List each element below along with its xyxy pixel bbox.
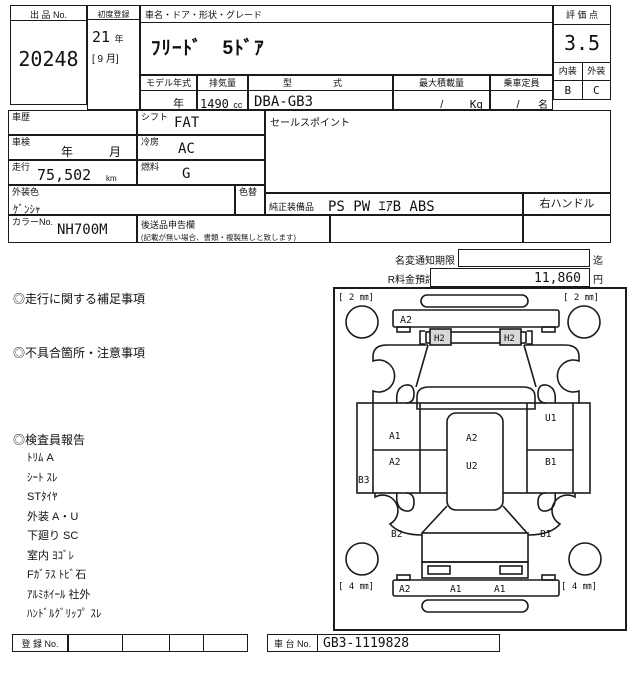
inspector-item: 下廻り SC <box>27 527 227 543</box>
inspection-month-unit: 月 <box>109 143 121 160</box>
interior-grade: B <box>554 81 583 100</box>
model-year-label: モデル年式 <box>141 76 196 91</box>
inspection-year-unit: 年 <box>61 143 73 160</box>
rear-right-wheel <box>569 543 601 575</box>
registration-cell-1 <box>68 634 123 652</box>
section-defect-notes: ◎不具合箇所・注意事項 <box>13 344 145 361</box>
tread-front-right: [ 2 ㎜] <box>563 293 599 303</box>
first-registration-month: [ 9 月] <box>92 50 137 65</box>
history-label: 車歴 <box>12 113 30 122</box>
rear-hatch <box>422 533 528 562</box>
rear-left-wheel <box>346 543 378 575</box>
rocker-left-code: B3 <box>358 475 369 486</box>
color-change-cell: 色替 <box>235 185 265 215</box>
color-number-cell: カラーNo. NH700M <box>8 215 137 243</box>
later-items-cell: 後送品申告欄 (記載が無い場合、書類・複製無しと致します) <box>137 215 330 243</box>
auction-sheet: 出 品 No. 20248 初度登録 21 年 [ 9 月] 車名・ドア・形状・… <box>0 0 640 680</box>
ac-cell: 冷房 AC <box>137 135 265 160</box>
model-code-cell: 型 式 DBA-GB3 <box>248 75 393 110</box>
door-left-bottom-code: A2 <box>389 457 400 468</box>
inspector-item: STﾀｲﾔ <box>27 488 227 504</box>
shift-cell: シフト FAT <box>137 110 265 135</box>
capacity-label: 乗車定員 <box>491 76 552 91</box>
displacement-cell: 排気量 1490 cc <box>197 75 248 110</box>
tread-front-left: [ 2 ㎜] <box>338 293 374 303</box>
name-change-field <box>458 249 590 267</box>
interior-label: 内装 <box>554 63 583 80</box>
model-code-label: 型 式 <box>249 76 392 91</box>
exterior-grade: C <box>583 81 611 100</box>
grade-label: 評 価 点 <box>554 6 610 25</box>
rear-bumper <box>393 580 559 596</box>
rear-bumper-code-3: A1 <box>494 584 506 595</box>
empty-cell-left <box>330 215 523 243</box>
handle-cell: 右ハンドル <box>523 193 611 215</box>
roof-code: A2 <box>466 433 477 444</box>
exterior-label: 外装 <box>583 63 611 80</box>
shift-label: シフト <box>141 113 168 122</box>
mileage-unit: km <box>106 174 117 183</box>
windshield <box>417 387 535 409</box>
door-left-top-code: A1 <box>389 431 401 442</box>
name-change-label: 名変通知期限 <box>330 252 455 267</box>
fuel-value: G <box>182 166 190 182</box>
car-name-value: ﾌﾘｰﾄﾞ 5ﾄﾞｱ <box>141 23 552 60</box>
history-cell: 車歴 <box>8 110 137 135</box>
first-registration-label: 初度登録 <box>88 6 139 20</box>
first-registration-box: 初度登録 21 年 [ 9 月] <box>87 5 140 110</box>
sales-point-label: セールスポイント <box>270 114 350 129</box>
inspector-item: Fｶﾞﾗｽ ﾄﾋﾞ石 <box>27 566 227 582</box>
mileage-label: 走行 <box>12 163 30 172</box>
taillight-left <box>428 566 450 574</box>
taillight-right <box>500 566 522 574</box>
inspector-item: 室内 ﾖｺﾞﾚ <box>27 547 227 563</box>
registration-number-label: 登 録 No. <box>12 634 68 652</box>
headlight-right-code: H2 <box>504 334 515 344</box>
displacement-value: 1490 <box>200 97 229 111</box>
front-bumper-code: A2 <box>400 315 412 326</box>
taillight-panel <box>422 562 528 578</box>
color-number-label: カラーNo. <box>12 218 53 227</box>
front-right-wheel <box>568 306 600 338</box>
displacement-label: 排気量 <box>198 76 247 91</box>
first-registration-year-unit: 年 <box>115 34 124 44</box>
capacity-cell: 乗車定員 / 名 <box>490 75 553 110</box>
floor-code: U2 <box>466 461 477 472</box>
mileage-value: 75,502 <box>37 166 91 184</box>
rear-right-quarter <box>528 493 575 535</box>
later-items-note: (記載が無い場合、書類・複製無しと致します) <box>138 231 329 243</box>
registration-cell-2 <box>122 634 170 652</box>
mirror-right <box>538 385 555 403</box>
model-code-value: DBA-GB3 <box>249 91 392 110</box>
tread-rear-right: [ 4 ㎜] <box>561 582 597 592</box>
fuel-label: 燃料 <box>141 163 159 172</box>
equipment-label: 純正装備品 <box>269 200 314 213</box>
max-load-cell: 最大積載量 / Kg <box>393 75 490 110</box>
lot-number-box: 出 品 No. 20248 <box>10 5 87 105</box>
model-year-value: 年 <box>141 91 196 111</box>
vehicle-damage-diagram: [ 2 ㎜] [ 2 ㎜] [ 4 ㎜] [ 4 ㎜] A2 H2 H2 A1 … <box>333 287 627 631</box>
car-name-header: 車名・ドア・形状・グレード <box>141 6 552 23</box>
headlight-left-code: H2 <box>434 334 445 344</box>
equipment-cell: 純正装備品 PS PW ｴｱB ABS <box>265 193 523 215</box>
inspection-label: 車検 <box>12 138 30 147</box>
registration-cell-3 <box>169 634 204 652</box>
chassis-number-label: 車 台 No. <box>267 634 318 652</box>
ac-value: AC <box>178 141 195 157</box>
inspector-item: 外装 A・U <box>27 508 227 524</box>
first-registration-year: 21 <box>92 28 110 46</box>
mirror-left <box>397 385 414 403</box>
exterior-color-label: 外装色 <box>12 188 39 197</box>
side-right-bottom-code: B1 <box>545 457 557 468</box>
exterior-color-cell: 外装色 ｹﾞﾝｼｬ <box>8 185 235 215</box>
inspection-cell: 車検 年 月 <box>8 135 137 160</box>
front-bumper <box>393 310 559 327</box>
inspector-item: ｱﾙﾐﾎｲｰﾙ 社外 <box>27 586 227 602</box>
fuel-cell: 燃料 G <box>137 160 265 185</box>
displacement-unit: cc <box>233 100 242 110</box>
inspector-item: ﾊﾝﾄﾞﾙｸﾞﾘｯﾌﾟ ｽﾚ <box>27 605 227 621</box>
recycle-fee-unit: 円 <box>593 271 603 286</box>
color-number-value: NH700M <box>57 222 108 238</box>
car-name-box: 車名・ドア・形状・グレード ﾌﾘｰﾄﾞ 5ﾄﾞｱ <box>140 5 553 75</box>
empty-cell-right <box>523 215 611 243</box>
color-change-label: 色替 <box>239 188 257 197</box>
rear-bumper-code-1: A2 <box>399 584 410 595</box>
chassis-number-value: GB3-1119828 <box>318 635 499 651</box>
mileage-cell: 走行 75,502 km <box>8 160 137 185</box>
chassis-number-cell: GB3-1119828 <box>317 634 500 652</box>
quarter-right-code: B1 <box>540 529 552 540</box>
hood-lines <box>416 345 536 387</box>
side-right-top-code: U1 <box>545 413 557 424</box>
ac-label: 冷房 <box>141 138 159 147</box>
rear-bumper-code-2: A1 <box>450 584 462 595</box>
lot-number-value: 20248 <box>11 47 86 71</box>
equipment-value: PS PW ｴｱB ABS <box>328 196 435 216</box>
model-year-cell: モデル年式 年 <box>140 75 197 110</box>
section-inspector-report: ◎検査員報告 <box>13 431 85 448</box>
name-change-suffix: 迄 <box>593 252 603 267</box>
front-top-bar <box>421 295 528 307</box>
shift-value: FAT <box>174 115 199 131</box>
registration-cell-4 <box>203 634 248 652</box>
grade-value: 3.5 <box>554 25 610 63</box>
quarter-left-code: B2 <box>391 529 402 540</box>
tread-rear-left: [ 4 ㎜] <box>338 582 374 592</box>
max-load-label: 最大積載量 <box>394 76 489 91</box>
sales-point-box: セールスポイント <box>265 110 611 193</box>
recycle-fee-value: 11,860 <box>431 269 589 286</box>
lot-number-label: 出 品 No. <box>11 6 86 21</box>
grade-box: 評 価 点 3.5 内装 外装 B C <box>553 5 611 100</box>
rear-bottom-bar <box>422 600 528 612</box>
inspector-item: ｼｰﾄ ｽﾚ <box>27 469 227 485</box>
inspector-items-list: ﾄﾘﾑ A ｼｰﾄ ｽﾚ STﾀｲﾔ 外装 A・U 下廻り SC 室内 ﾖｺﾞﾚ… <box>27 449 227 621</box>
later-items-label: 後送品申告欄 <box>138 216 329 231</box>
front-left-wheel <box>346 306 378 338</box>
handle-value: 右ハンドル <box>524 194 610 214</box>
section-driving-notes: ◎走行に関する補足事項 <box>13 290 145 307</box>
recycle-fee-field: 11,860 <box>430 268 590 287</box>
inspector-item: ﾄﾘﾑ A <box>27 449 227 465</box>
